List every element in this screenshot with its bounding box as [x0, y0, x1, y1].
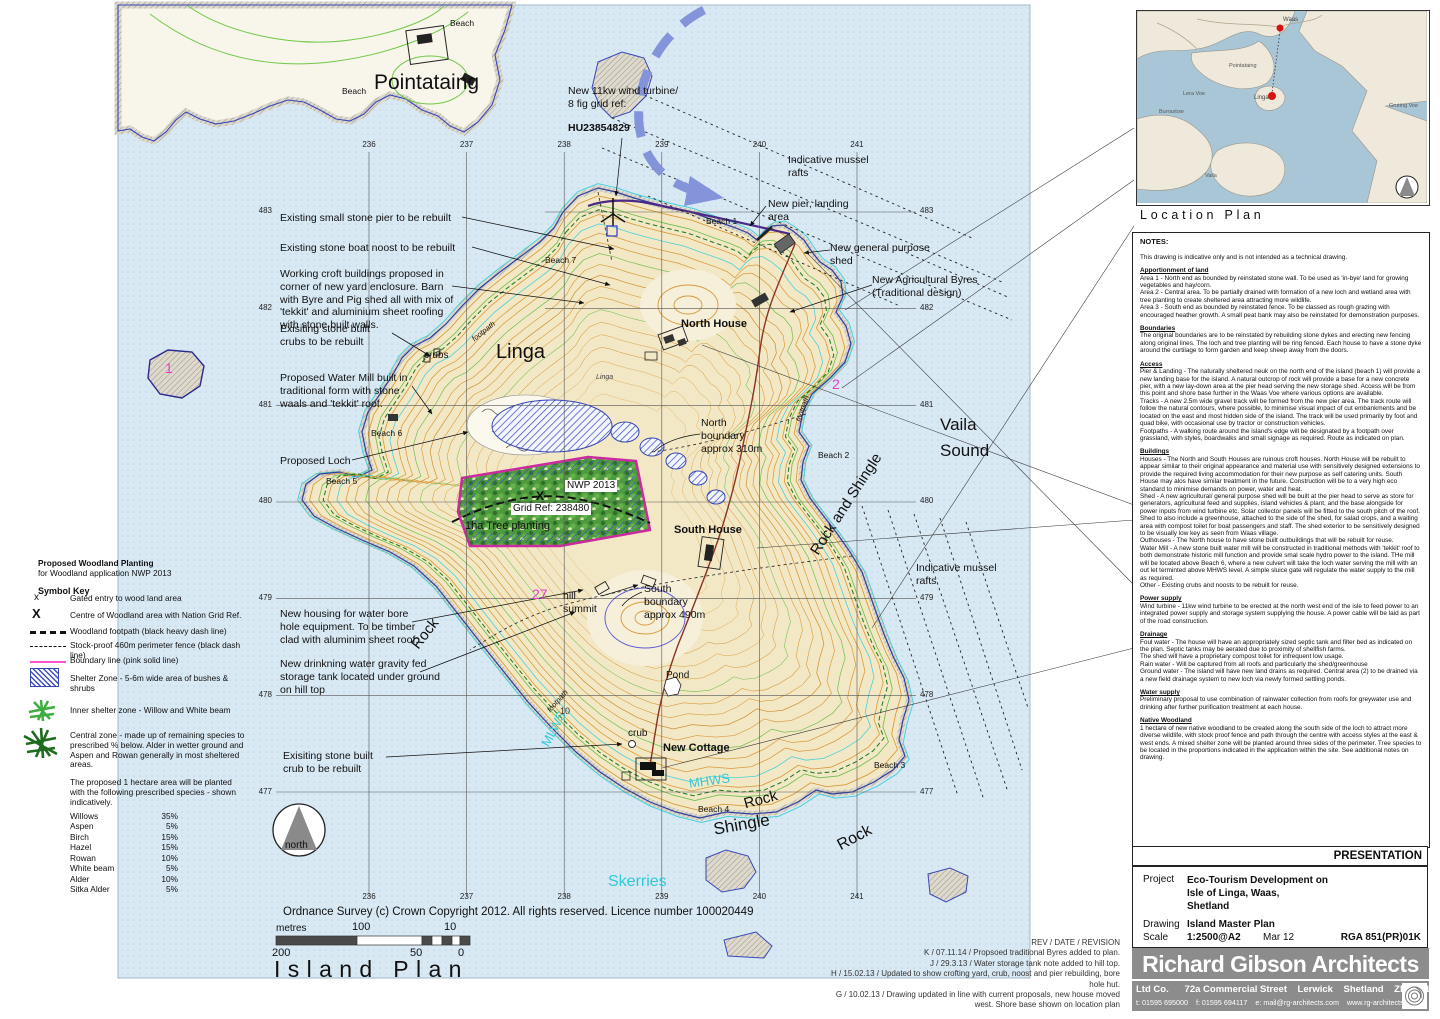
species-name: Rowan: [70, 853, 161, 863]
title-block: Project Eco-Tourism Development on Isle …: [1132, 866, 1428, 948]
location-north-icon: [1396, 176, 1418, 198]
grid-number: 241: [844, 892, 870, 901]
copyright-line: Ordnance Survey (c) Crown Copyright 2012…: [283, 905, 753, 919]
label-vaila-sound: Vaila Sound: [940, 412, 1025, 463]
notes-section: Access Pier & Landing - The naturally sh…: [1140, 361, 1422, 443]
inner-shelter-symbol: [26, 698, 58, 725]
loc-label-lera-voe: Lera Voe: [1183, 91, 1205, 97]
notes-section-body: Wind turbine - 11kw wind turbine to be e…: [1140, 603, 1422, 625]
grid-number: 480: [920, 496, 944, 507]
species-percent: 10%: [161, 853, 178, 863]
notes-intro: This drawing is indicative only and is n…: [1140, 254, 1422, 261]
species-percent: 35%: [161, 811, 178, 821]
revision-header: REV / DATE / REVISION: [818, 938, 1120, 948]
species-row: Sitka Alder 5%: [70, 884, 178, 894]
grid-number: 237: [454, 892, 480, 901]
notes-section-heading: Water supply: [1140, 689, 1422, 696]
project-value: Eco-Tourism Development on Isle of Linga…: [1187, 874, 1328, 913]
note-wind-turbine-ref: HU23854829: [568, 122, 630, 135]
label-skerries: Skerries: [608, 872, 667, 892]
label-beach7: Beach 7: [545, 255, 576, 265]
notes-section: Water supply Preliminary proposal to use…: [1140, 689, 1422, 711]
species-percent: 5%: [166, 863, 178, 873]
loc-label-burrastow: Burrastow: [1159, 109, 1184, 115]
location-plan-title: Location Plan: [1140, 208, 1265, 223]
label-beach4: Beach 4: [698, 804, 729, 814]
notes-section: Power supply Wind turbine - 11kw wind tu…: [1140, 595, 1422, 625]
label-contour-10: 10: [560, 706, 570, 717]
notes-section-heading: Boundaries: [1140, 325, 1422, 332]
notes-section-heading: Power supply: [1140, 595, 1422, 602]
label-tree-planting: 1ha Tree planting: [465, 520, 550, 533]
notes-section-heading: Apportionment of land: [1140, 267, 1422, 274]
notes-section-body: Houses - The North and South Houses are …: [1140, 456, 1422, 590]
centre-symbol: X: [32, 606, 41, 621]
label-north-house: North House: [681, 318, 747, 331]
key-note: The proposed 1 hectare area will be plan…: [70, 778, 248, 807]
architect-name: Richard Gibson Architects: [1132, 948, 1429, 981]
presentation-bar: PRESENTATION: [1132, 846, 1428, 866]
label-agri-byres: New Agricultural Byres (Traditional desi…: [872, 274, 1037, 300]
species-percent: 15%: [161, 842, 178, 852]
scalebar-unit: metres: [276, 923, 307, 935]
scalebar-200: 200: [272, 947, 290, 960]
notes-section: Native Woodland 1 hectare of new native …: [1140, 717, 1422, 762]
architect-logo: [1402, 983, 1427, 1009]
loc-label-linga: Linga: [1254, 95, 1269, 101]
species-name: White beam: [70, 863, 166, 873]
label-pond: Pond: [666, 670, 689, 682]
note-pier-rebuilt: Existing small stone pier to be rebuilt: [280, 212, 465, 225]
project-label: Project: [1143, 874, 1174, 885]
label-beach-a: Beach: [450, 18, 474, 28]
architect-contact: t: 01595 695000 f: 01595 694117 e: mail@…: [1132, 995, 1429, 1007]
boundary-line-symbol: [30, 661, 66, 663]
species-percent: 15%: [161, 832, 178, 842]
label-hill-summit: hill summit: [563, 590, 609, 616]
scalebar-50: 50: [410, 947, 422, 960]
grid-number: 481: [248, 400, 272, 411]
label-beach2: Beach 2: [818, 450, 849, 460]
grid-number: 478: [248, 690, 272, 701]
compass-north-label: north: [285, 840, 308, 852]
key-subtitle: for Woodland application NWP 2013: [38, 569, 171, 579]
central-zone-symbol: [22, 726, 60, 763]
species-name: Hazel: [70, 842, 161, 852]
revision-lines: K / 07.11.14 / Propsoed traditional Byre…: [818, 948, 1120, 1010]
grid-number: 482: [920, 303, 944, 314]
species-name: Aspen: [70, 821, 166, 831]
key-label-footpath: Woodland footpath (black heavy dash line…: [70, 627, 248, 637]
note-crub-rebuilt: Exisiting stone built crub to be rebuilt: [283, 750, 383, 776]
shelter-zone-symbol: [30, 668, 59, 687]
notes-section-body: The original boundaries are to be reinst…: [1140, 332, 1422, 354]
note-bore-hole: New housing for water bore hole equipmen…: [280, 608, 420, 646]
drawing-label: Drawing: [1143, 919, 1180, 930]
scale-bar: [276, 936, 470, 945]
grid-labels-right: 483482481480479478477: [920, 206, 944, 798]
location-plan-svg: [1137, 11, 1427, 203]
loc-label-pointataing: Pointataing: [1229, 63, 1257, 69]
key-label-central-zone: Central zone - made up of remaining spec…: [70, 731, 248, 770]
notes-title: NOTES:: [1140, 238, 1422, 247]
label-mussel-rafts-north: Indicative mussel rafts: [788, 154, 873, 180]
drawing-ref: RGA 851(PR)01K: [1341, 932, 1421, 943]
woodland-footpath-symbol: [30, 631, 66, 634]
label-area-2: 2: [832, 376, 840, 393]
label-south-house: South House: [674, 524, 742, 537]
notes-section-heading: Access: [1140, 361, 1422, 368]
grid-number: 240: [746, 140, 772, 149]
grid-number: 483: [920, 206, 944, 217]
label-crub: crub: [628, 728, 647, 740]
species-percent: 10%: [161, 874, 178, 884]
gate-symbol: x: [34, 592, 39, 604]
label-area-1: 1: [165, 360, 173, 377]
label-woodland-centre-x: X: [536, 489, 544, 504]
stock-fence-symbol: [30, 646, 66, 647]
notes-panel: NOTES: This drawing is indicative only a…: [1132, 232, 1430, 848]
grid-number: 477: [248, 787, 272, 798]
grid-labels-left: 483482481480479478477: [248, 206, 272, 798]
grid-number: 479: [248, 593, 272, 604]
species-name: Sitka Alder: [70, 884, 166, 894]
label-beach-b: Beach: [342, 86, 366, 96]
grid-number: 479: [920, 593, 944, 604]
label-north-boundary: North boundary approx 310m: [701, 417, 767, 455]
notes-section-body: 1 hectare of new native woodland to be c…: [1140, 725, 1422, 762]
date-value: Mar 12: [1263, 932, 1294, 943]
grid-number: 481: [920, 400, 944, 411]
notes-sections: Apportionment of land Area 1 - North end…: [1140, 267, 1422, 762]
key-label-boundary: Boundary line (pink solid line): [70, 656, 248, 666]
scalebar-10: 10: [444, 921, 456, 934]
species-name: Alder: [70, 874, 161, 884]
label-linga: Linga: [496, 340, 545, 364]
grid-number: 482: [248, 303, 272, 314]
species-row: Aspen 5%: [70, 821, 178, 831]
notes-section: Drainage Foul water - The house will hav…: [1140, 631, 1422, 683]
note-proposed-loch: Proposed Loch: [280, 455, 400, 468]
species-name: Birch: [70, 832, 161, 842]
species-row: Alder 10%: [70, 874, 178, 884]
grid-number: 240: [746, 892, 772, 901]
grid-number: 236: [356, 892, 382, 901]
revision-line: K / 07.11.14 / Propsoed traditional Byre…: [818, 948, 1120, 958]
key-label-shelter: Shelter Zone - 5-6m wide area of bushes …: [70, 674, 248, 694]
notes-section-heading: Drainage: [1140, 631, 1422, 638]
label-new-cottage: New Cottage: [663, 742, 730, 755]
revision-line: J / 29.3.13 / Water storage tank note ad…: [818, 959, 1120, 969]
notes-section: Apportionment of land Area 1 - North end…: [1140, 267, 1422, 319]
species-row: Rowan 10%: [70, 853, 178, 863]
notes-section-heading: Buildings: [1140, 448, 1422, 455]
revision-line: G / 10.02.13 / Drawing updated in line w…: [818, 990, 1120, 1011]
species-percent: 5%: [166, 884, 178, 894]
grid-number: 237: [454, 140, 480, 149]
notes-section-body: Pier & Landing - The naturally sheltered…: [1140, 368, 1422, 442]
label-nwp-2013: NWP 2013: [565, 480, 617, 492]
drawing-title: Island Plan: [274, 955, 469, 983]
scale-value: 1:2500@A2: [1187, 932, 1241, 943]
label-grid-ref: Grid Ref: 238480: [511, 503, 591, 515]
grid-number: 238: [551, 892, 577, 901]
revision-line: H / 15.02.13 / Updated to show crofting …: [818, 969, 1120, 990]
species-name: Willows: [70, 811, 161, 821]
note-wind-turbine: New 11kw wind turbine/ 8 fig grid ref:: [568, 85, 688, 111]
label-area-27: 27: [532, 586, 548, 603]
architect-footer: Richard Gibson Architects Ltd Co. 72a Co…: [1132, 948, 1429, 1011]
notes-section-body: Foul water - The house will have an appr…: [1140, 639, 1422, 684]
label-linga-small: Linga: [596, 374, 613, 383]
note-crubs-rebuilt: Exisiting stone built crubs to be rebuil…: [280, 323, 385, 349]
species-row: Hazel 15%: [70, 842, 178, 852]
label-south-boundary: South boundary approx 490m: [644, 583, 710, 621]
grid-number: 478: [920, 690, 944, 701]
notes-section-body: Area 1 - North end as bounded by reinsta…: [1140, 275, 1422, 320]
species-list: Willows 35% Aspen 5% Birch 15% Hazel 15%…: [70, 811, 178, 895]
note-noost-rebuilt: Existing stone boat noost to be rebuilt: [280, 242, 475, 255]
grid-labels-bottom: 236237238239240241: [356, 892, 870, 901]
grid-number: 239: [649, 892, 675, 901]
grid-number: 477: [920, 787, 944, 798]
label-beach6: Beach 6: [371, 428, 402, 438]
species-row: Birch 15%: [70, 832, 178, 842]
key-label-inner-shelter: Inner shelter zone - Willow and White be…: [70, 706, 248, 716]
note-storage-tank: New drinkning water gravity fed storage …: [280, 658, 442, 696]
note-water-mill: Proposed Water Mill built in traditional…: [280, 372, 422, 410]
species-percent: 5%: [166, 821, 178, 831]
grid-number: 236: [356, 140, 382, 149]
grid-number: 483: [248, 206, 272, 217]
notes-section-body: Preliminary proposal to use combination …: [1140, 696, 1422, 711]
label-beach5: Beach 5: [326, 476, 357, 486]
grid-number: 238: [551, 140, 577, 149]
label-new-pier: New pier, landing area: [768, 198, 863, 224]
grid-number: 239: [649, 140, 675, 149]
notes-section: Buildings Houses - The North and South H…: [1140, 448, 1422, 589]
grid-number: 480: [248, 496, 272, 507]
loc-label-gruting-voe: Gruting Voe: [1389, 103, 1418, 109]
grid-labels-top: 236237238239240241: [356, 140, 870, 149]
presentation-label: PRESENTATION: [1334, 850, 1422, 862]
label-crubs: crubs: [424, 350, 448, 362]
notes-section-heading: Native Woodland: [1140, 717, 1422, 724]
drawing-value: Island Master Plan: [1187, 919, 1275, 930]
species-row: Willows 35%: [70, 811, 178, 821]
architect-address: Ltd Co. 72a Commercial Street Lerwick Sh…: [1132, 981, 1429, 995]
label-pointataing: Pointataing: [374, 70, 479, 96]
scalebar-0: 0: [458, 947, 464, 960]
species-row: White beam 5%: [70, 863, 178, 873]
notes-section: Boundaries The original boundaries are t…: [1140, 325, 1422, 355]
location-plan-map: Waas Pointataing Linga Lera Voe Burrasto…: [1136, 10, 1430, 206]
loc-label-vaila: Vaila: [1205, 173, 1217, 179]
scalebar-100: 100: [352, 921, 370, 934]
label-beach1: Beach 1: [706, 216, 737, 226]
loc-label-waas: Waas: [1283, 17, 1298, 23]
key-label-centre: Centre of Woodland area with Nation Grid…: [70, 611, 248, 621]
grid-number: 241: [844, 140, 870, 149]
revision-block: REV / DATE / REVISION K / 07.11.14 / Pro…: [818, 938, 1120, 1011]
label-beach3: Beach 3: [874, 760, 905, 770]
island-plan-drawing: { "map": { "grid": { "cols": ["236","237…: [0, 0, 1440, 1019]
scale-label: Scale: [1143, 932, 1168, 943]
key-label-gate: Gated entry to wood land area: [70, 594, 248, 604]
